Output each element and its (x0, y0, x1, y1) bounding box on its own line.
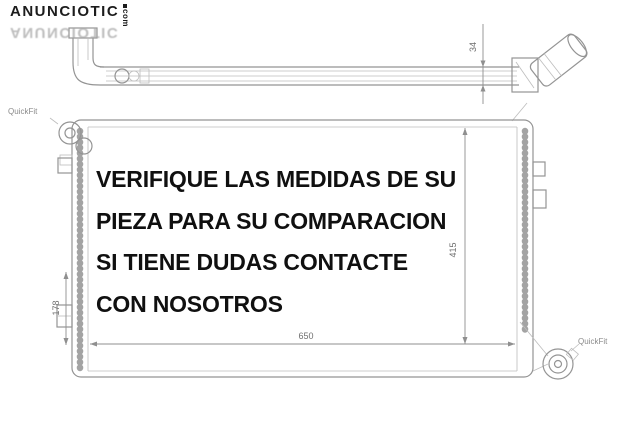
overlay-line-3: SI TIENE DUDAS CONTACTE (96, 242, 456, 284)
watermark: ANUNCIOTIC com ANUNCIOTIC (10, 4, 129, 40)
leader-line (512, 103, 527, 121)
watermark-reflection: ANUNCIOTIC (10, 25, 129, 40)
quickfit-label-top-left: QuickFit (8, 107, 38, 116)
outlet-angled-fitting (512, 31, 591, 92)
overlay-line-1: VERIFIQUE LAS MEDIDAS DE SU (96, 159, 456, 201)
quickfit-label-bottom-right: QuickFit (578, 337, 608, 346)
core-bar (100, 67, 519, 85)
overlay-line-2: PIEZA PARA SU COMPARACION (96, 201, 456, 243)
right-bracket-lower (533, 190, 546, 208)
overlay-line-4: CON NOSOTROS (96, 284, 456, 326)
quickfit-connector-bottom-right (520, 322, 579, 379)
width-dim-label: 650 (298, 331, 313, 341)
watermark-brand: ANUNCIOTIC (10, 4, 119, 19)
depth-dim-label: 34 (468, 42, 478, 52)
depth-dimension: 34 (468, 24, 486, 104)
width-dimension: 650 (90, 331, 515, 347)
radiator-side-view: 34 (69, 24, 591, 121)
watermark-dot (123, 4, 127, 8)
offset-dimension: 178 (51, 272, 69, 345)
warning-text-overlay: VERIFIQUE LAS MEDIDAS DE SU PIEZA PARA S… (96, 159, 456, 325)
right-bracket-upper (533, 162, 545, 176)
offset-dim-label: 178 (51, 300, 61, 315)
